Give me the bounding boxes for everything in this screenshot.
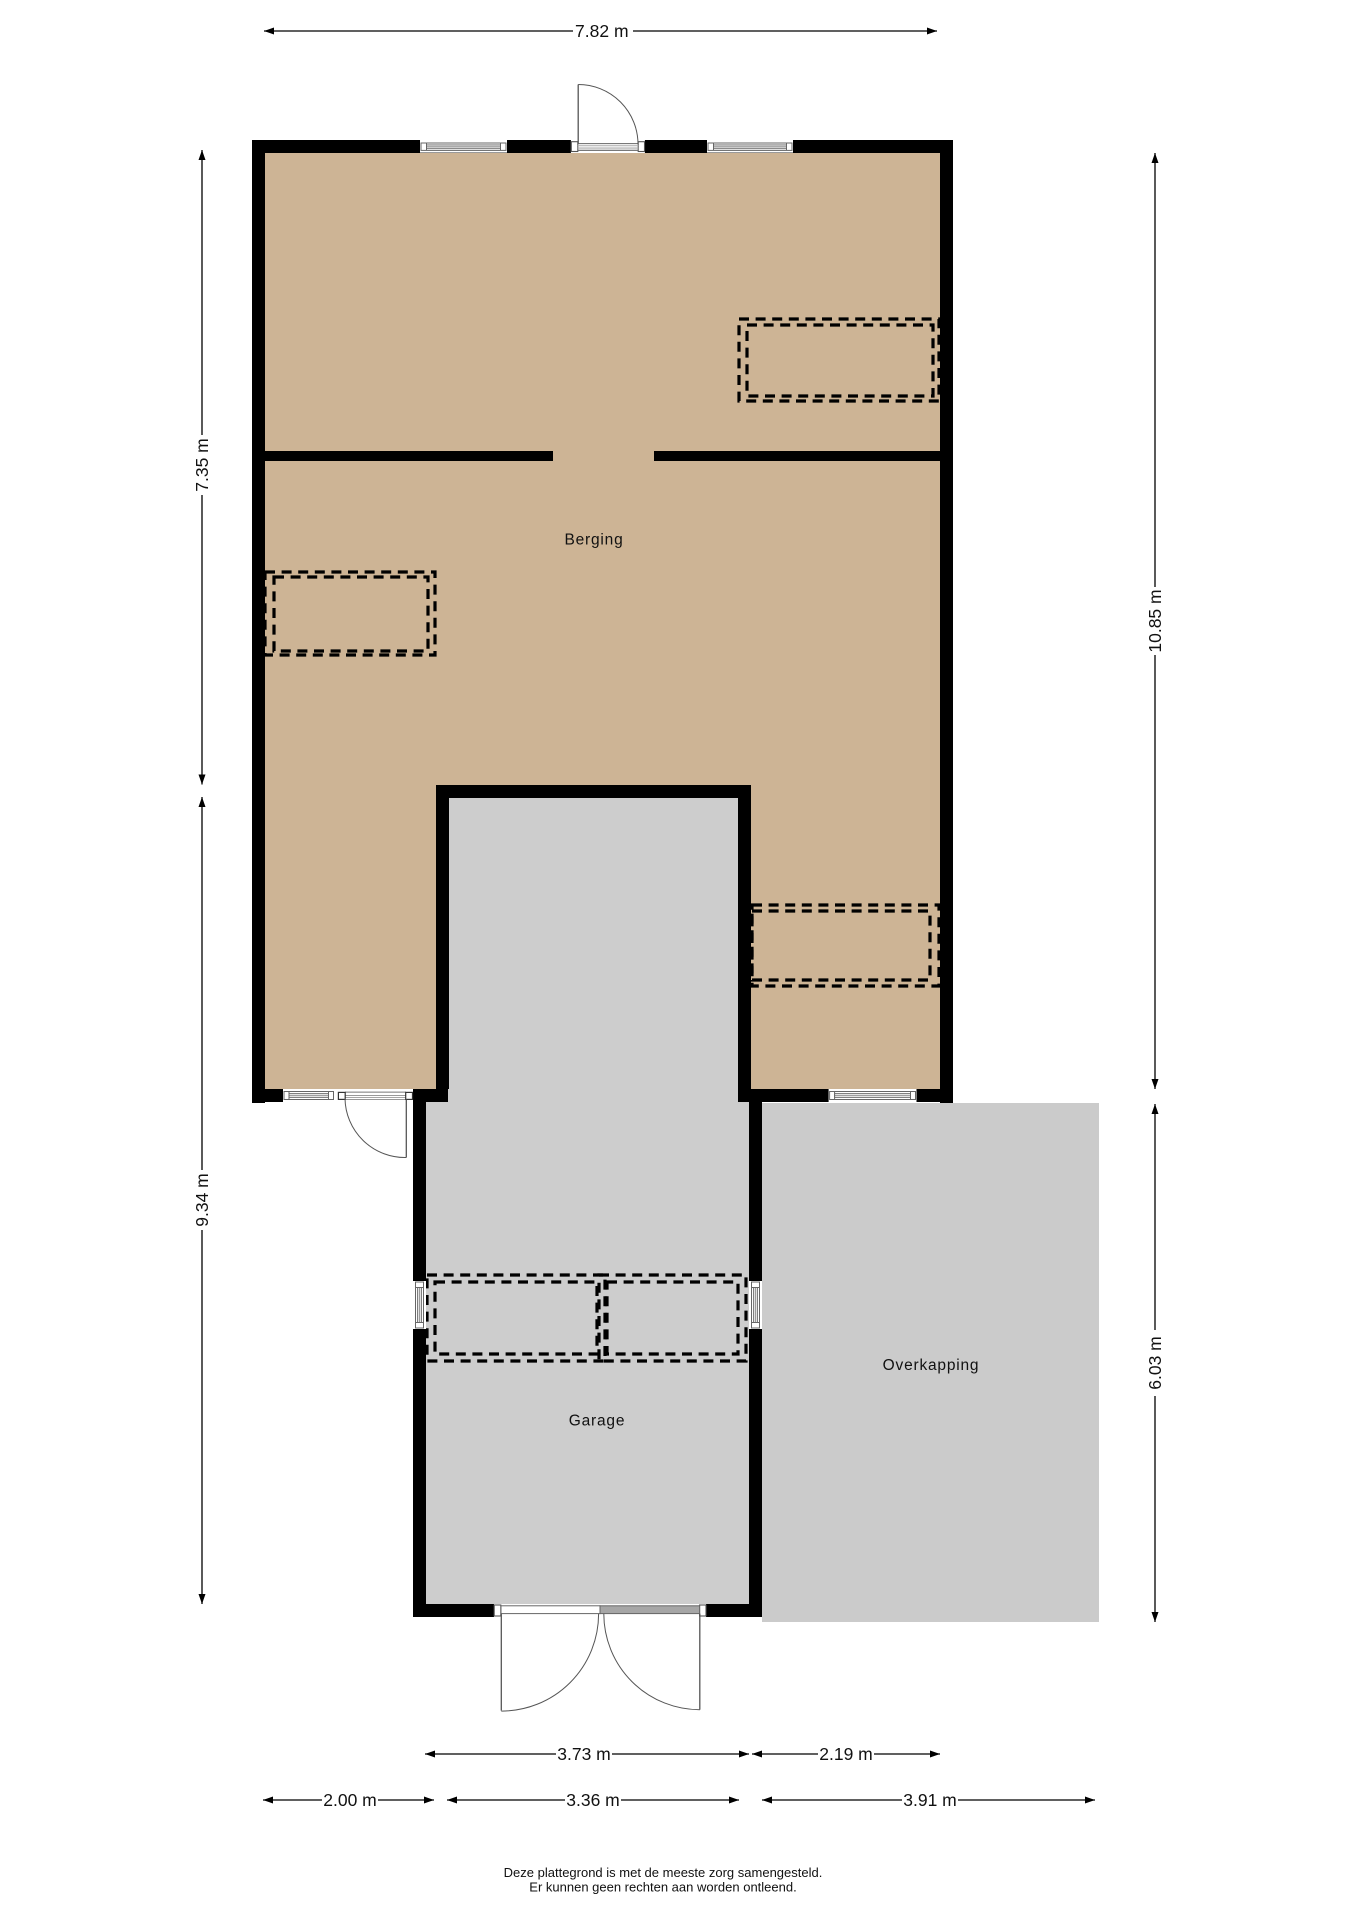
- svg-text:Er kunnen geen rechten aan wor: Er kunnen geen rechten aan worden ontlee…: [529, 1880, 796, 1895]
- svg-text:10.85 m: 10.85 m: [1145, 589, 1165, 652]
- svg-text:3.36 m: 3.36 m: [566, 1790, 620, 1810]
- svg-text:6.03 m: 6.03 m: [1145, 1336, 1165, 1390]
- svg-text:7.82 m: 7.82 m: [575, 21, 629, 41]
- svg-text:Overkapping: Overkapping: [883, 1357, 980, 1374]
- svg-text:3.91 m: 3.91 m: [903, 1790, 957, 1810]
- svg-text:Berging: Berging: [564, 532, 623, 549]
- svg-text:2.19 m: 2.19 m: [819, 1744, 873, 1764]
- svg-text:9.34 m: 9.34 m: [192, 1173, 212, 1227]
- svg-text:3.73 m: 3.73 m: [557, 1744, 611, 1764]
- svg-text:7.35 m: 7.35 m: [192, 438, 212, 492]
- svg-text:2.00 m: 2.00 m: [323, 1790, 377, 1810]
- svg-text:Deze plattegrond is met de mee: Deze plattegrond is met de meeste zorg s…: [504, 1865, 823, 1880]
- svg-text:Garage: Garage: [569, 1413, 626, 1430]
